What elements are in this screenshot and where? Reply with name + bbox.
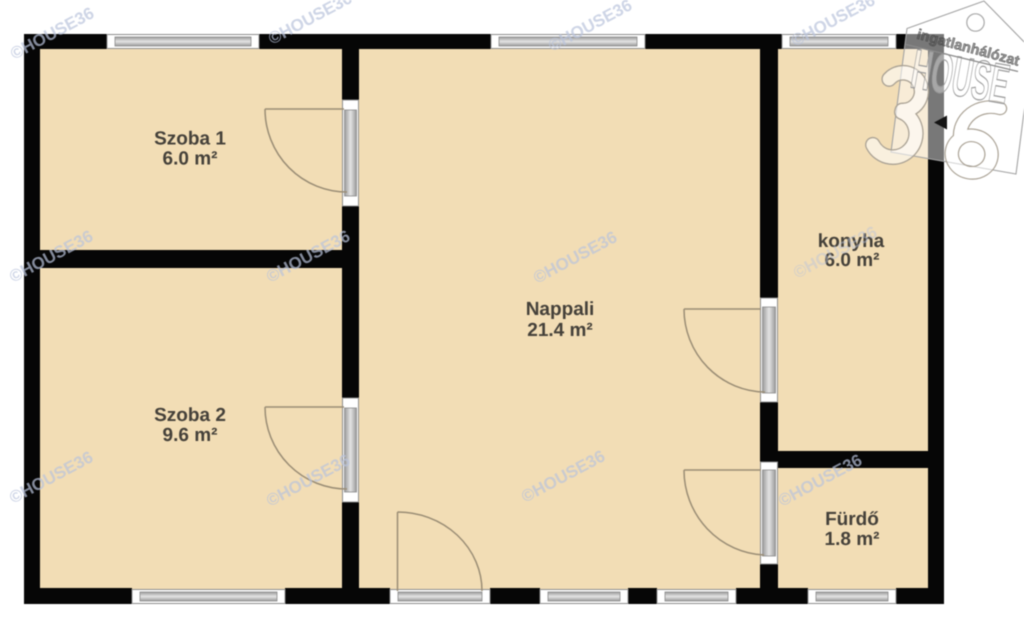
svg-text:Szoba 1: Szoba 1 <box>154 129 226 150</box>
svg-text:1.8 m²: 1.8 m² <box>825 529 880 550</box>
svg-text:Fürdő: Fürdő <box>825 509 879 530</box>
svg-text:Szoba 2: Szoba 2 <box>154 405 226 426</box>
svg-text:21.4 m²: 21.4 m² <box>527 320 592 341</box>
svg-text:6.0 m²: 6.0 m² <box>163 149 218 170</box>
svg-text:Nappali: Nappali <box>526 299 595 320</box>
svg-text:9.6 m²: 9.6 m² <box>163 425 218 446</box>
